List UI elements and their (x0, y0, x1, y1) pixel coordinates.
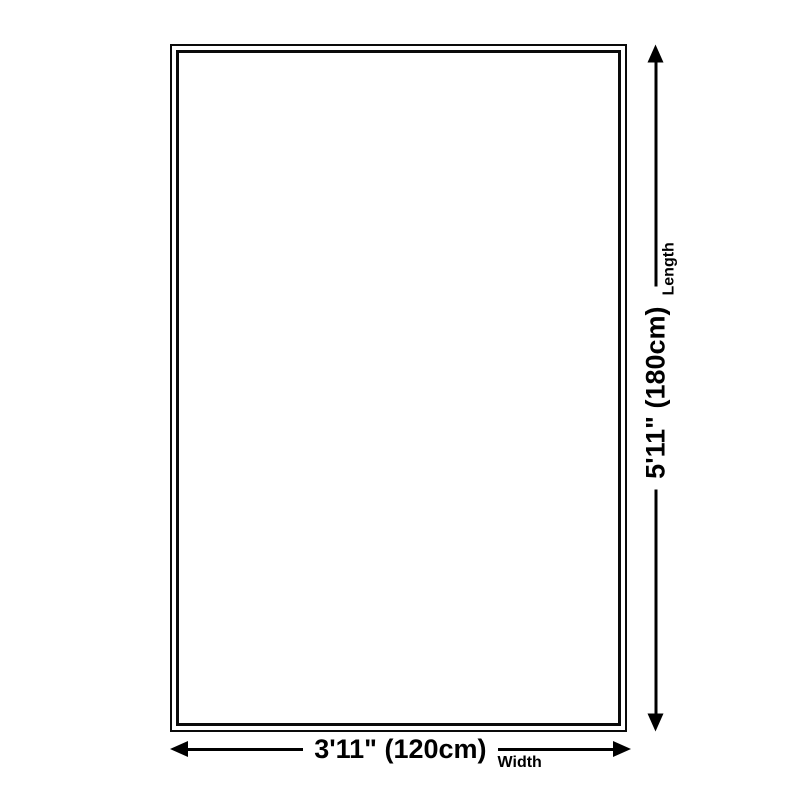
width-label: Width (498, 755, 542, 771)
dimension-line (498, 748, 613, 751)
arrow-up-icon (648, 44, 664, 62)
dimension-line (654, 490, 657, 714)
size-diagram: 3'11" (120cm) Width 5'11" (180cm) Length (0, 0, 800, 800)
length-label: Length (662, 242, 678, 295)
arrow-right-icon (613, 741, 631, 757)
width-value: 3'11" (120cm) (303, 736, 497, 763)
dimension-line (188, 748, 303, 751)
length-dimension-arrow: 5'11" (180cm) Length (633, 45, 679, 732)
arrow-down-icon (648, 714, 664, 732)
product-outline-inner (176, 50, 621, 726)
product-outline-outer (170, 44, 627, 732)
length-value: 5'11" (180cm) (642, 295, 669, 489)
width-dimension-arrow: 3'11" (120cm) Width (170, 726, 631, 772)
arrow-left-icon (170, 741, 188, 757)
dimension-line (654, 62, 657, 286)
